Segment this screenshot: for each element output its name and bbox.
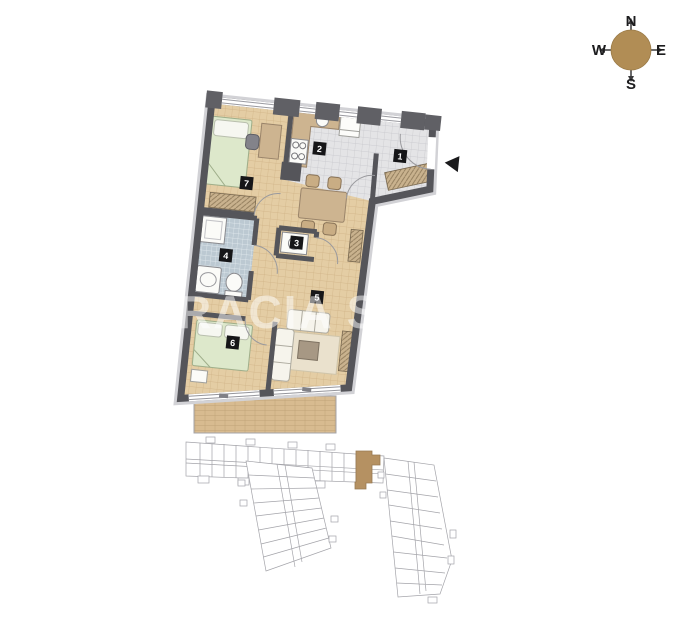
entrance-door-gap bbox=[429, 137, 434, 169]
desk-chair bbox=[245, 134, 259, 150]
room-badge-1: 1 bbox=[393, 149, 407, 163]
room-3-number: 3 bbox=[293, 238, 299, 248]
room-badge-7: 7 bbox=[239, 176, 253, 190]
compass-rose bbox=[611, 30, 651, 70]
entrance-arrow-icon bbox=[444, 155, 460, 172]
room-4-number: 4 bbox=[223, 251, 229, 261]
room-7-number: 7 bbox=[243, 178, 249, 188]
floor-plan-page: 1 2 3 4 5 6 7 bbox=[0, 0, 692, 627]
coffee-table bbox=[297, 340, 319, 360]
shower bbox=[200, 216, 227, 244]
compass-label-west: W bbox=[592, 42, 607, 59]
dining-table bbox=[298, 188, 347, 223]
compass: N S W E bbox=[592, 13, 666, 93]
nightstand bbox=[190, 369, 207, 383]
dining-chair bbox=[305, 174, 319, 187]
floor-plan-image: 1 2 3 4 5 6 7 bbox=[0, 0, 692, 627]
room-badge-2: 2 bbox=[312, 141, 326, 155]
dining-chair bbox=[323, 222, 337, 235]
room-badge-4: 4 bbox=[219, 248, 233, 262]
building-key-plan bbox=[186, 437, 456, 603]
room-badge-3: 3 bbox=[289, 235, 303, 249]
desk bbox=[258, 123, 281, 159]
dining-chair bbox=[327, 177, 341, 190]
apartment-plan: 1 2 3 4 5 6 7 bbox=[175, 90, 464, 425]
window-pillar bbox=[273, 98, 301, 118]
compass-label-east: E bbox=[656, 42, 666, 59]
bed-pillow bbox=[213, 119, 248, 138]
window-pillar bbox=[205, 90, 223, 109]
room-1-number: 1 bbox=[397, 151, 403, 161]
compass-label-north: N bbox=[626, 13, 637, 30]
window-pillar bbox=[356, 106, 382, 125]
watermark: RACIA SA bbox=[178, 286, 415, 338]
window-pillar bbox=[400, 111, 426, 130]
room-2-number: 2 bbox=[316, 144, 322, 154]
compass-label-south: S bbox=[626, 76, 636, 93]
stove bbox=[289, 139, 308, 165]
window-pillar bbox=[424, 114, 441, 131]
wall-stub bbox=[280, 162, 302, 182]
room-6-number: 6 bbox=[230, 338, 236, 348]
window-pillar bbox=[315, 102, 341, 121]
